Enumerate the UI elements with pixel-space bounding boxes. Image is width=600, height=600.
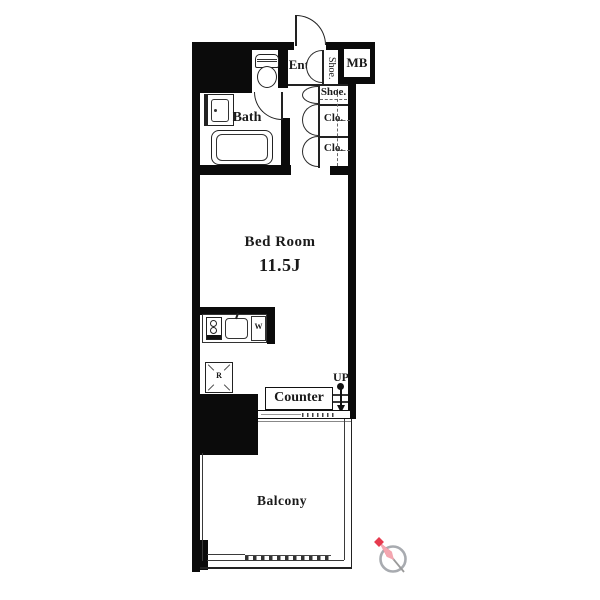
wall-block-toilet-north bbox=[192, 42, 252, 93]
window-hatch bbox=[302, 413, 336, 417]
closet-upper-label: Clo. bbox=[319, 112, 348, 124]
balcony-rail-bottom-outer bbox=[200, 567, 352, 569]
shoe-closet-label: Shoe. bbox=[319, 86, 348, 98]
wall-right-main bbox=[348, 84, 356, 419]
bedroom-name: Bed Room bbox=[230, 234, 330, 251]
balcony-step-line bbox=[207, 554, 245, 555]
refrigerator-label: R bbox=[205, 371, 233, 380]
shoe-cabinet-door-arc bbox=[306, 50, 322, 83]
washer-label: W bbox=[251, 322, 266, 331]
closet-door-arc-2 bbox=[302, 104, 318, 136]
toilet-tank-band bbox=[257, 59, 277, 62]
window-rail-line bbox=[261, 414, 301, 415]
closet-divider-2 bbox=[318, 136, 348, 138]
wall-block-southwest bbox=[195, 394, 258, 455]
compass-north-icon bbox=[372, 534, 414, 578]
floorplan-canvas: MB Entry Shoe. Shoe. Clo. Clo. Bath Bed … bbox=[0, 0, 600, 600]
balcony-rail-right-outer bbox=[351, 419, 353, 569]
closet-shelf-dash-1 bbox=[320, 99, 347, 100]
bedroom-size: 11.5J bbox=[230, 255, 330, 276]
closet-divider-1 bbox=[318, 104, 348, 106]
stove-grill bbox=[207, 335, 221, 339]
stair-direction-line bbox=[340, 388, 342, 406]
fridge-tick-bl bbox=[208, 384, 214, 390]
balcony-rail-bottom-inner bbox=[207, 560, 344, 561]
fridge-tick-tl bbox=[208, 364, 214, 370]
balcony-rail-right-inner bbox=[344, 419, 345, 560]
entry-door-arc bbox=[296, 15, 326, 45]
wall-bottom-left-corner bbox=[192, 540, 208, 570]
bath-label: Bath bbox=[229, 110, 265, 126]
closet-lower-label: Clo. bbox=[319, 142, 348, 154]
kitchen-sink bbox=[225, 318, 248, 339]
closet-door-arc-1 bbox=[302, 86, 318, 104]
wall-bath-south bbox=[192, 165, 291, 175]
fridge-tick-tr bbox=[224, 364, 230, 370]
balcony-rail-left bbox=[202, 453, 203, 561]
stove-burner-2 bbox=[210, 327, 217, 334]
bath-door-leaf bbox=[281, 92, 283, 120]
toilet-bowl bbox=[257, 66, 277, 88]
wall-entry-toilet bbox=[278, 42, 288, 88]
wall-kitchen-east bbox=[267, 307, 275, 344]
counter-label: Counter bbox=[265, 390, 333, 406]
closet-hanger-pipe bbox=[337, 89, 338, 166]
closet-door-arc-3 bbox=[302, 136, 318, 167]
shoe-cabinet-label: Shoe. bbox=[323, 50, 337, 86]
meter-box-label: MB bbox=[344, 55, 370, 71]
wall-closet-south-stub bbox=[330, 166, 356, 175]
balcony-label: Balcony bbox=[248, 493, 316, 509]
bathtub-inner bbox=[216, 134, 268, 161]
fridge-tick-br bbox=[224, 384, 230, 390]
stove-burner-1 bbox=[210, 320, 217, 327]
vanity-drain-dot bbox=[214, 109, 217, 112]
window-sill-line bbox=[258, 421, 352, 422]
